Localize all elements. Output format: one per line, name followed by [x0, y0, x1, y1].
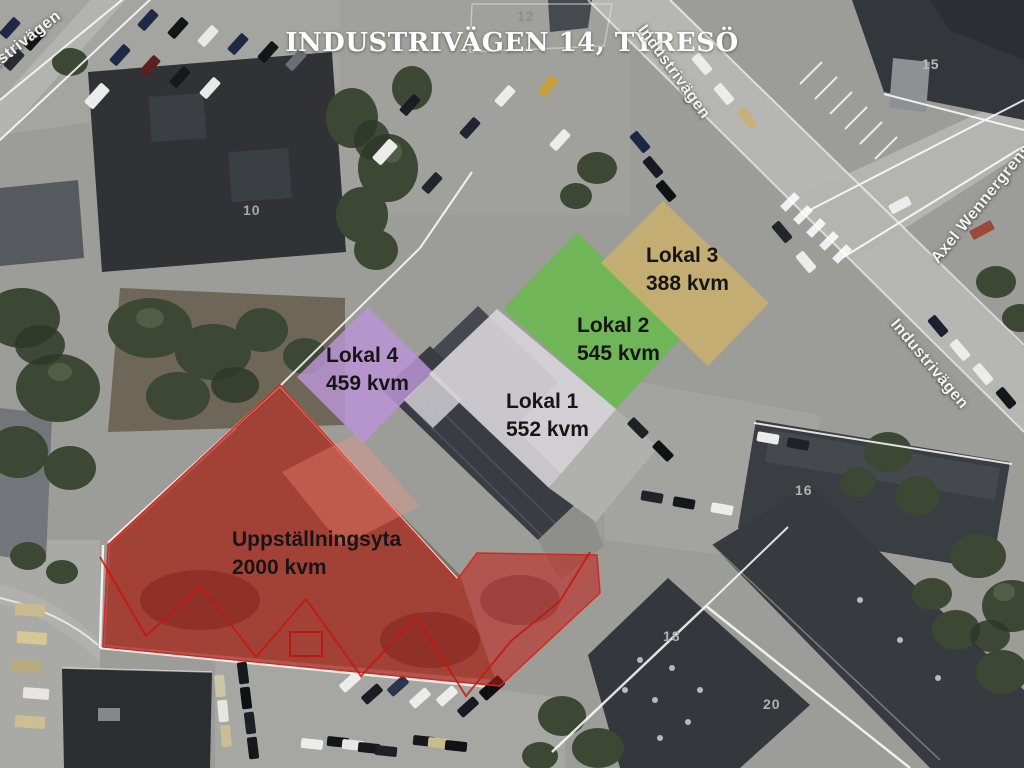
label-lokal1: Lokal 1 552 kvm: [506, 388, 589, 444]
lot-number-20: 20: [763, 696, 781, 712]
lokal2-size: 545 kvm: [577, 340, 660, 368]
aerial-map: INDUSTRIVÄGEN 14, TYRESÖ Lokal 4 459 kvm…: [0, 0, 1024, 768]
lokal2-name: Lokal 2: [577, 312, 660, 340]
lokal4-size: 459 kvm: [326, 370, 409, 398]
uppstallningsyta-name: Uppställningsyta: [232, 526, 401, 554]
lokal3-size: 388 kvm: [646, 270, 729, 298]
uppstallningsyta-size: 2000 kvm: [232, 554, 401, 582]
building-left-small: [0, 180, 84, 266]
lot-number-18: 18: [663, 628, 681, 644]
label-uppstallningsyta: Uppställningsyta 2000 kvm: [232, 526, 401, 582]
lot-number-15: 15: [922, 56, 940, 72]
lot-number-12: 12: [517, 8, 535, 24]
satellite-background: [0, 0, 1024, 768]
building-bottom-left: [62, 668, 212, 768]
label-lokal3: Lokal 3 388 kvm: [646, 242, 729, 298]
lokal1-name: Lokal 1: [506, 388, 589, 416]
lot-number-16: 16: [795, 482, 813, 498]
lokal1-size: 552 kvm: [506, 416, 589, 444]
lokal4-name: Lokal 4: [326, 342, 409, 370]
label-lokal4: Lokal 4 459 kvm: [326, 342, 409, 398]
lot-number-10: 10: [243, 202, 261, 218]
label-lokal2: Lokal 2 545 kvm: [577, 312, 660, 368]
lokal3-name: Lokal 3: [646, 242, 729, 270]
